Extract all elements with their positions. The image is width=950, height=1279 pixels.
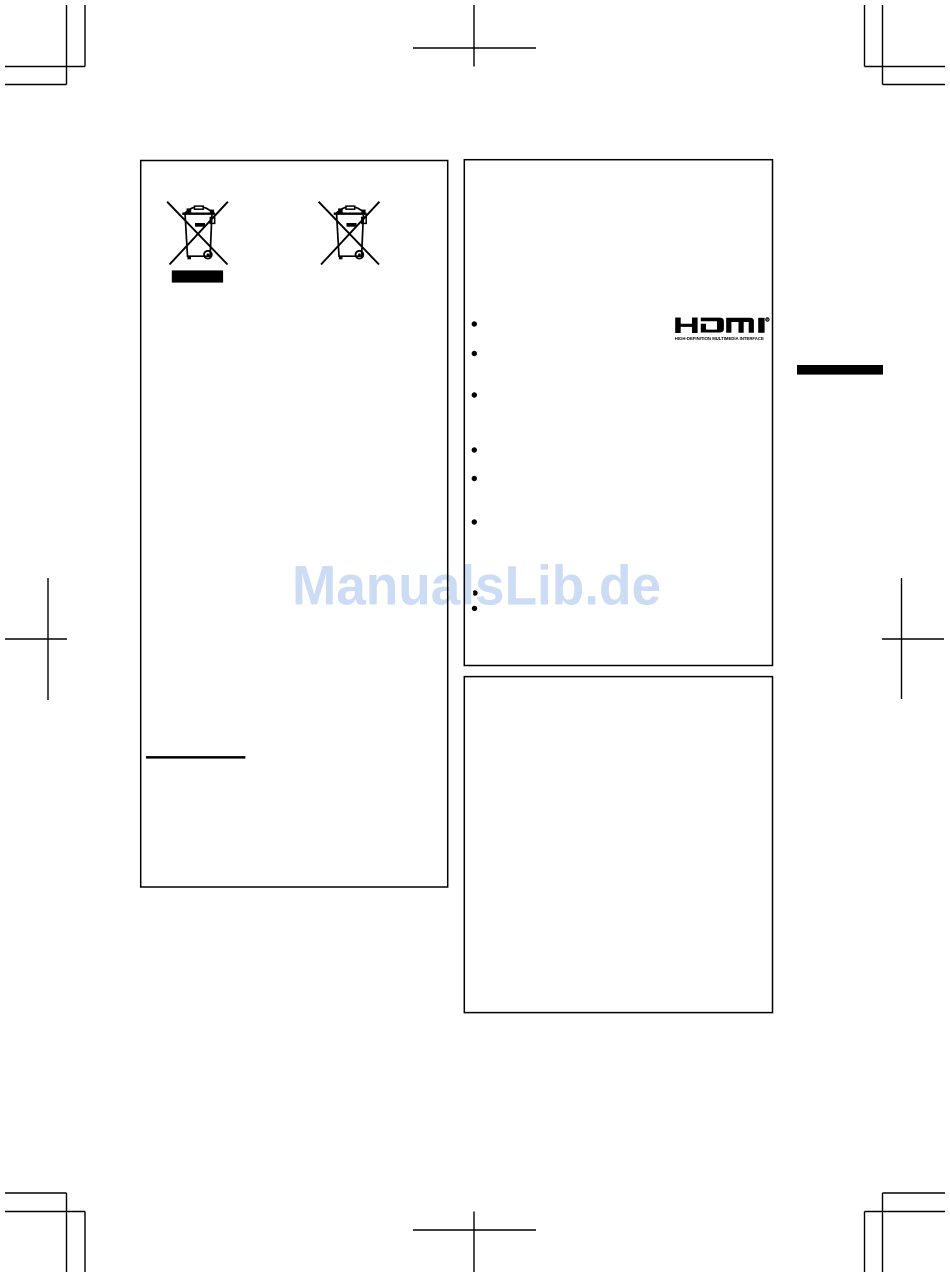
svg-text:HIGH-DEFINITION MULTIMEDIA INT: HIGH-DEFINITION MULTIMEDIA INTERFACE <box>675 336 764 341</box>
